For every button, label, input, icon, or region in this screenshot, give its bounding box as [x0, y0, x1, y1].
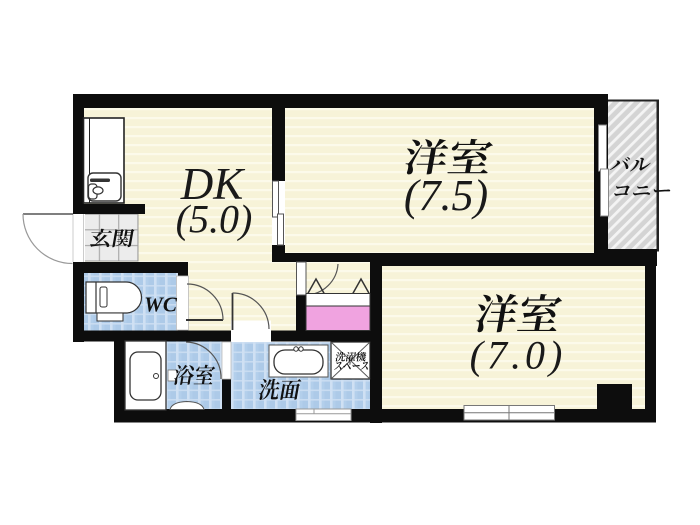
svg-text:(7.5): (7.5): [404, 171, 488, 220]
svg-text:(7.0): (7.0): [470, 333, 567, 378]
svg-text:(5.0): (5.0): [176, 197, 253, 242]
svg-text:WC: WC: [144, 293, 178, 317]
